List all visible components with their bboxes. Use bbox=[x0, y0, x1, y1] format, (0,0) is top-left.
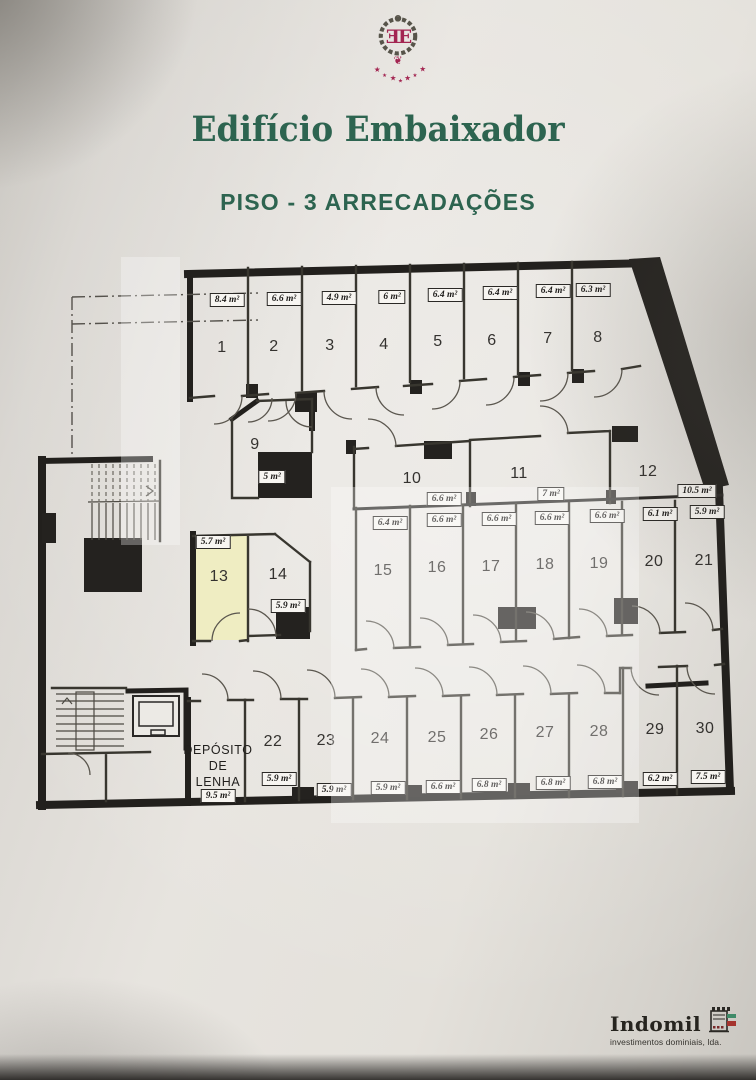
room-area-label: 6.3 m² bbox=[576, 283, 611, 297]
room-area-label: 6.8 m² bbox=[472, 778, 507, 792]
room-area-label: 4.9 m² bbox=[322, 291, 357, 305]
crest-ornament-icon: ❦ bbox=[393, 55, 402, 67]
crest-monogram: ƎE bbox=[386, 27, 412, 48]
room-area-label: 6.8 m² bbox=[588, 775, 623, 789]
room-number: 2 bbox=[269, 338, 278, 356]
elevator-icon bbox=[133, 696, 179, 736]
room-area-label: 5.9 m² bbox=[317, 783, 352, 797]
room-area-label: 6.6 m² bbox=[427, 492, 462, 506]
room-13-highlight bbox=[194, 536, 247, 640]
svg-text:★: ★ bbox=[412, 72, 417, 79]
brand-building-icon bbox=[703, 1006, 737, 1036]
floorplan-walls bbox=[0, 0, 756, 1080]
boundary-lines bbox=[72, 293, 258, 458]
room-number: 17 bbox=[482, 558, 501, 576]
svg-text:★: ★ bbox=[419, 64, 426, 73]
room-number: 15 bbox=[374, 562, 393, 580]
room-number: 24 bbox=[371, 730, 390, 748]
room-number: 29 bbox=[646, 721, 665, 739]
floor-subtitle: PISO - 3 ARRECADAÇÕES bbox=[220, 189, 536, 216]
company-logo: Indomil investimentos dominiais, lda. bbox=[610, 1006, 752, 1047]
room-number: 13 bbox=[210, 568, 229, 586]
room-area-label: 5 m² bbox=[258, 470, 285, 484]
room-number: 16 bbox=[428, 559, 447, 577]
room-number: 7 bbox=[543, 330, 552, 348]
room-area-label: 5.9 m² bbox=[690, 505, 725, 519]
floorplan-drawing: 1 2 3 4 5 6 7 8 9 10 11 12 13 14 15 16 1… bbox=[0, 0, 756, 1080]
building-crest-logo: ƎE ❦ ★ ★ ★ ★ ★ ★ ★ bbox=[367, 10, 429, 90]
room-area-label: 6.6 m² bbox=[267, 292, 302, 306]
svg-text:★: ★ bbox=[390, 73, 397, 82]
svg-text:★: ★ bbox=[398, 77, 403, 84]
room-number: 14 bbox=[269, 566, 288, 584]
room-area-label: 6.4 m² bbox=[536, 284, 571, 298]
room-number: 27 bbox=[536, 724, 555, 742]
room-area-label: 7.5 m² bbox=[691, 770, 726, 784]
room-number: 9 bbox=[250, 436, 259, 454]
room-area-label: 6.6 m² bbox=[427, 513, 462, 527]
room-area-label: 10.5 m² bbox=[677, 484, 716, 498]
room-area-label: 6.2 m² bbox=[643, 772, 678, 786]
room-area-label: 5.9 m² bbox=[371, 781, 406, 795]
room-number: 11 bbox=[510, 465, 528, 483]
room-area-label: 6.6 m² bbox=[482, 512, 517, 526]
crest-emblem-icon: ƎE ❦ ★ ★ ★ ★ ★ ★ ★ bbox=[367, 10, 429, 90]
room-area-label: 6.6 m² bbox=[426, 780, 461, 794]
deposito-label: DEPÓSITO DE LENHA bbox=[183, 742, 252, 790]
room-area-label: 7 m² bbox=[537, 487, 564, 501]
room-area-label: 6.4 m² bbox=[483, 286, 518, 300]
photo-edge-shadow bbox=[0, 1054, 756, 1080]
room-number: 21 bbox=[695, 552, 714, 570]
room-number: 20 bbox=[645, 553, 664, 571]
room-area-label: 8.4 m² bbox=[210, 293, 245, 307]
svg-text:★: ★ bbox=[404, 73, 411, 82]
room-area-label: 5.7 m² bbox=[196, 535, 231, 549]
svg-text:★: ★ bbox=[374, 65, 381, 74]
brand-name: Indomil bbox=[610, 1012, 701, 1036]
room-area-label: 6.6 m² bbox=[535, 511, 570, 525]
building-title: Edifício Embaixador bbox=[191, 109, 564, 150]
room-number: 25 bbox=[428, 729, 447, 747]
room-number: 12 bbox=[639, 463, 658, 481]
room-number: 18 bbox=[536, 556, 555, 574]
room-number: 5 bbox=[433, 333, 442, 351]
room-number: 22 bbox=[264, 733, 283, 751]
room-area-label: 6.4 m² bbox=[373, 516, 408, 530]
room-area-label: 6.8 m² bbox=[536, 776, 571, 790]
room-number: 3 bbox=[325, 337, 334, 355]
room-area-label: 6.4 m² bbox=[428, 288, 463, 302]
crest-stars-icon: ★ ★ ★ ★ ★ ★ ★ bbox=[374, 64, 426, 84]
staircase-lower-icon bbox=[56, 692, 124, 750]
room-number: 4 bbox=[379, 336, 388, 354]
scanned-floorplan-page: ƎE ❦ ★ ★ ★ ★ ★ ★ ★ Edifício Embaixador P… bbox=[0, 0, 756, 1080]
room-number: 10 bbox=[403, 470, 422, 488]
room-area-label: 6.1 m² bbox=[643, 507, 678, 521]
room-number: 28 bbox=[590, 723, 609, 741]
room-number: 26 bbox=[480, 726, 499, 744]
room-area-label: 5.9 m² bbox=[262, 772, 297, 786]
deposito-area-label: 9.5 m² bbox=[201, 789, 236, 803]
room-number: 8 bbox=[593, 329, 602, 347]
room-area-label: 6 m² bbox=[378, 290, 405, 304]
brand-tagline: investimentos dominiais, lda. bbox=[610, 1037, 752, 1047]
room-number: 23 bbox=[317, 732, 336, 750]
svg-text:★: ★ bbox=[382, 72, 387, 79]
room-area-label: 6.6 m² bbox=[590, 509, 625, 523]
room-number: 19 bbox=[590, 555, 609, 573]
room-number: 6 bbox=[487, 332, 496, 350]
room-number: 1 bbox=[217, 339, 226, 357]
room-area-label: 5.9 m² bbox=[271, 599, 306, 613]
room-number: 30 bbox=[696, 720, 715, 738]
